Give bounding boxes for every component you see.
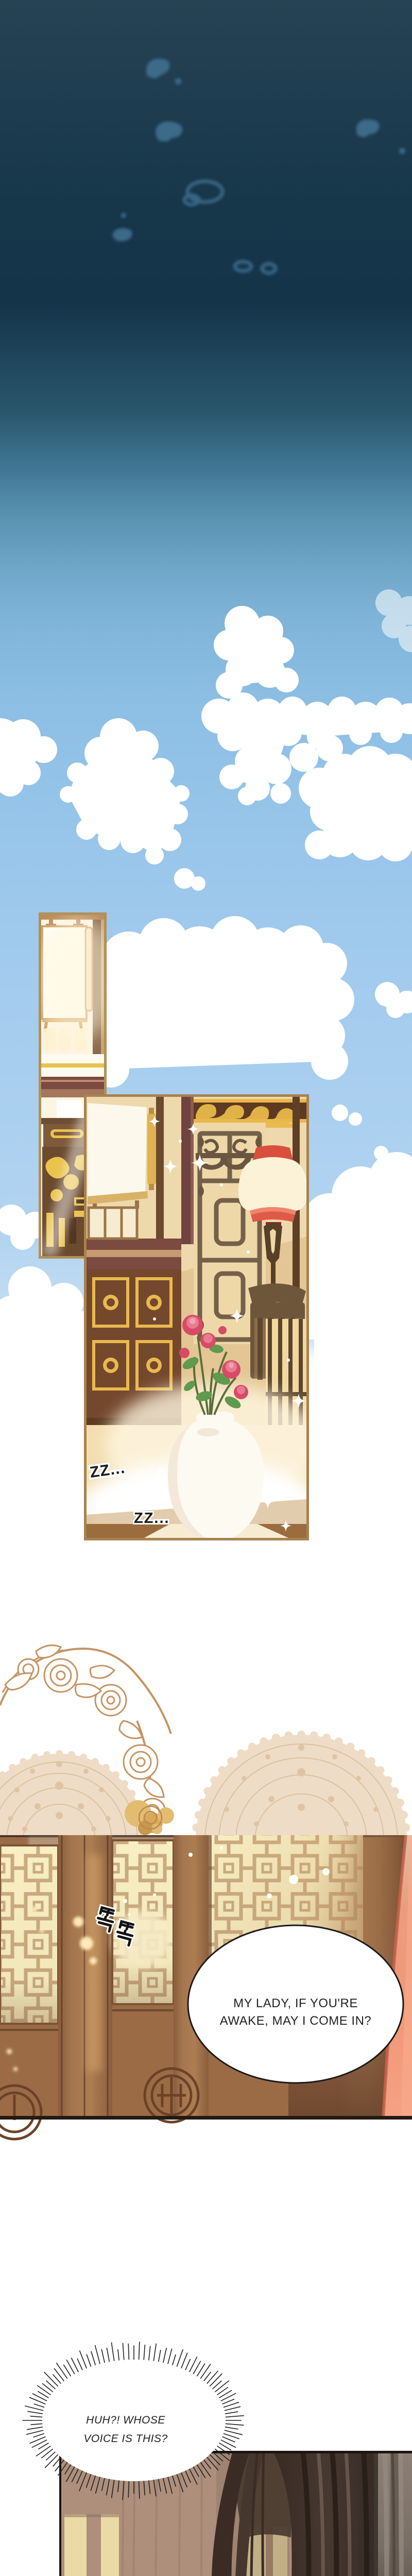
svg-text:ZZ...: ZZ...	[134, 1510, 170, 1527]
svg-text:AWAKE, MAY I COME IN?: AWAKE, MAY I COME IN?	[220, 2014, 372, 2028]
svg-text:MY LADY, IF YOU'RE: MY LADY, IF YOU'RE	[233, 1996, 358, 2010]
svg-text:HUH?! WHOSE: HUH?! WHOSE	[86, 2414, 165, 2426]
svg-text:VOICE IS THIS?: VOICE IS THIS?	[83, 2433, 167, 2445]
